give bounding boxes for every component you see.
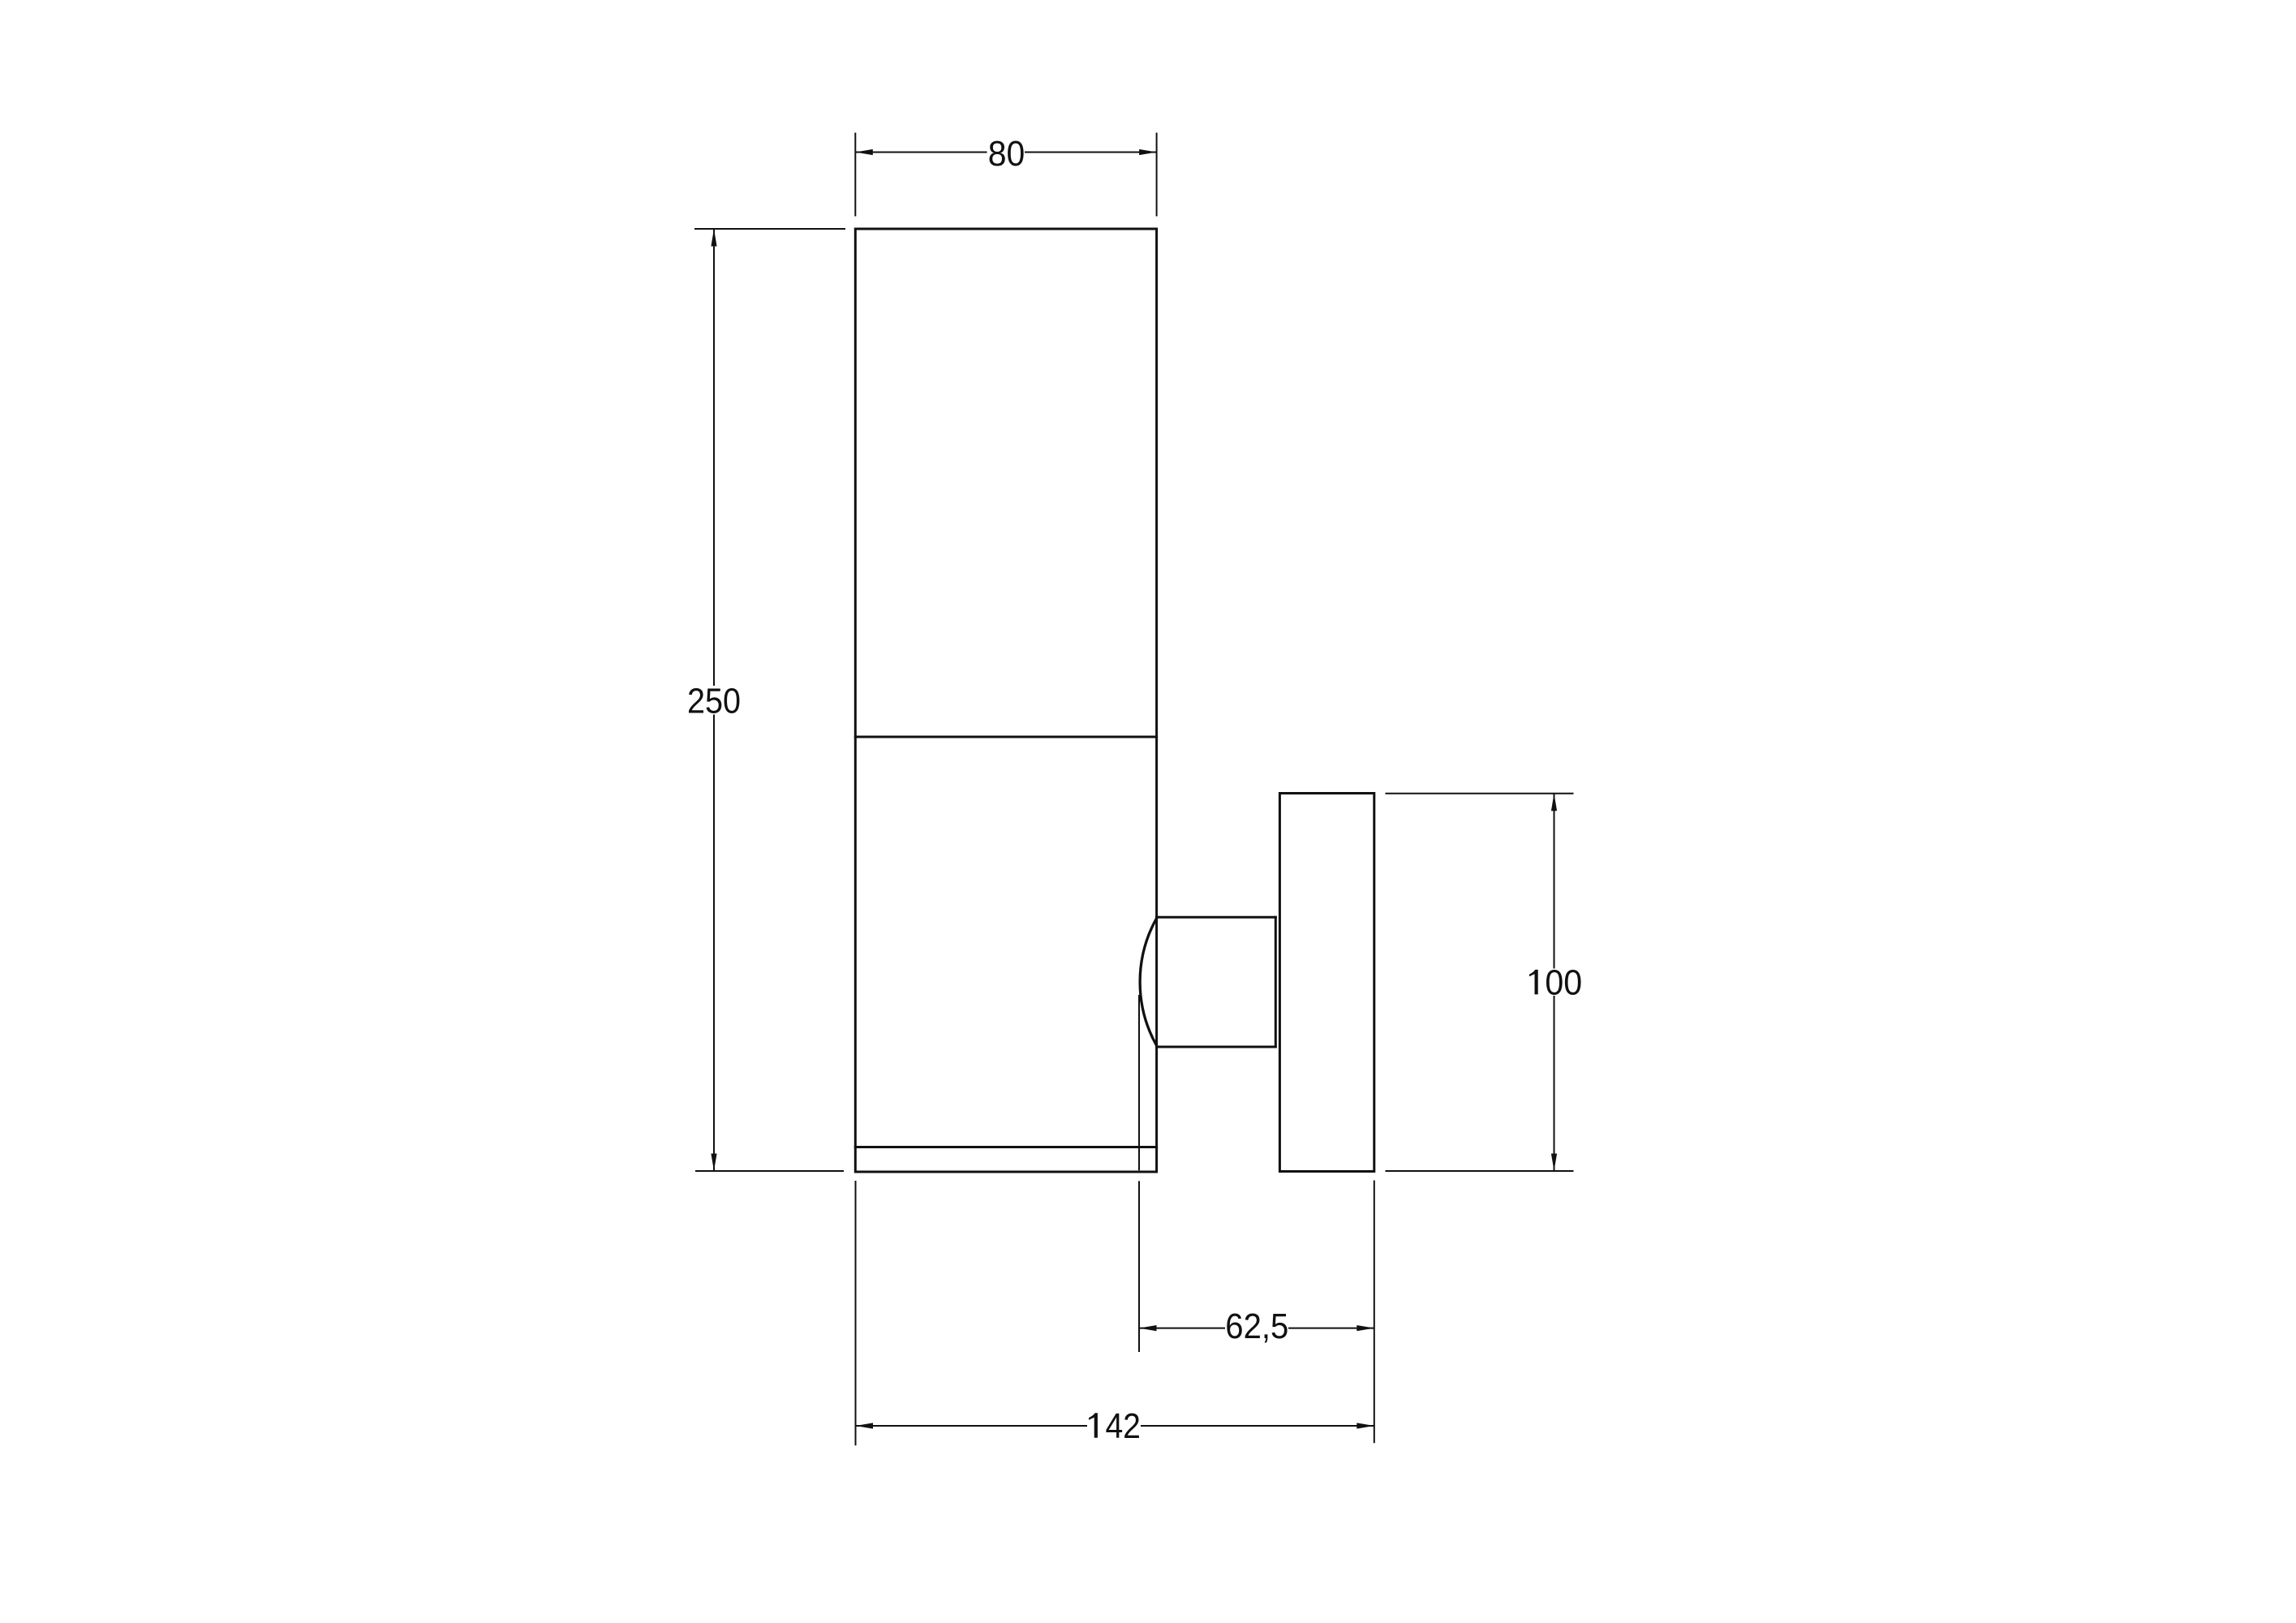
svg-text:62,5: 62,5 — [1225, 1307, 1288, 1346]
svg-text:00: 00 — [1545, 962, 1582, 1002]
svg-text:80: 80 — [988, 134, 1025, 174]
svg-text:250: 250 — [687, 682, 741, 721]
svg-text:42: 42 — [1105, 1406, 1141, 1446]
